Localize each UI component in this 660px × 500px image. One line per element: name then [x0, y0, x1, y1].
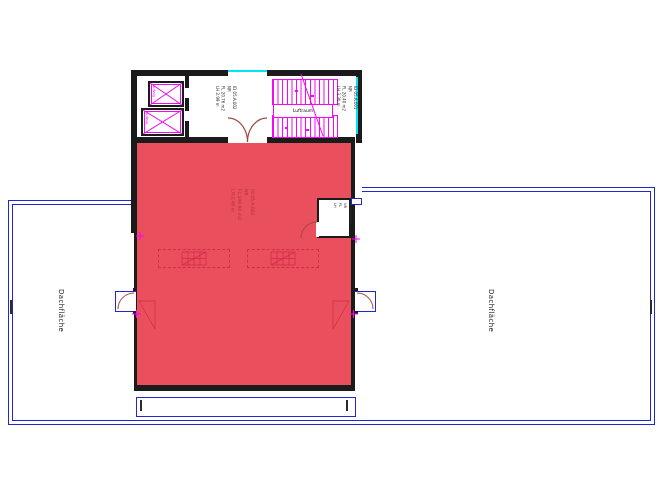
stair-flight-upper — [272, 79, 338, 105]
right-door-jamb-top — [354, 288, 358, 291]
skylight-right — [247, 249, 319, 268]
left-roof-top-outer — [8, 200, 137, 201]
left-exit-door — [115, 291, 136, 312]
left-roof-left-inner — [12, 204, 13, 421]
stamp-corridor-id: ID 05.A.002 — [231, 86, 237, 136]
floor-plan-canvas[interactable]: Dachfläche Dachfläche Aufzug Aufzug Luft… — [0, 0, 660, 500]
stamp-stairwell-fl: FL 20.40 m2 — [341, 86, 347, 136]
stamp-corridor: ID 05.A.002 NR FL 20.76 m2 LH 2.99 m — [214, 86, 237, 136]
right-edge-dimension-mark — [650, 300, 652, 314]
stamp-stairwell: ID 05.A.001 NR FL 20.40 m2 LH 3.30 m — [335, 86, 358, 136]
wall-top-left — [131, 70, 228, 76]
left-roof-left-outer — [8, 200, 9, 425]
elevator-2-car — [144, 111, 181, 133]
left-edge-dimension-mark — [10, 300, 12, 314]
balcony-left-mark — [140, 400, 142, 411]
storage-room-door-opening — [316, 222, 319, 237]
right-roof-right-outer — [654, 187, 655, 425]
window-top-center — [228, 70, 267, 72]
wall-left-upper — [131, 70, 137, 233]
right-roof-label: Dachfläche — [487, 289, 495, 332]
elevator-2-label: Aufzug — [145, 112, 149, 124]
right-roof-top-outer — [356, 187, 655, 188]
skylight-left — [158, 249, 230, 268]
stamp-hall-id: ID 05.A.004 — [248, 189, 255, 247]
stair-void-box: Luftraum — [273, 104, 333, 118]
stamp-stairwell-lh: LH 3.30 m — [335, 86, 341, 136]
lobby-wall-segment-2 — [185, 98, 189, 111]
wall-mid-left — [137, 137, 228, 143]
right-door-jamb-bottom — [354, 311, 358, 314]
stamp-hall-nr: NR — [241, 189, 248, 247]
roof-bottom-outer — [8, 424, 655, 425]
elevator-shaft-2: Aufzug — [141, 108, 184, 136]
roof-bottom-inner — [12, 420, 651, 421]
stamp-hall-fl: FL 199.90 m2 — [235, 189, 242, 247]
wall-right-lower — [351, 143, 355, 391]
wall-top-right — [267, 70, 362, 76]
stair-flight-lower — [272, 115, 338, 138]
stamp-hall-lh: LH 2.40 m — [228, 189, 235, 247]
balcony — [136, 397, 356, 417]
stamp-corridor-fl: FL 20.76 m2 — [220, 86, 226, 136]
lobby-wall-segment-3 — [185, 121, 189, 137]
right-roof-top-inner — [356, 191, 651, 192]
left-door-jamb-bottom — [133, 311, 137, 314]
balcony-right-mark — [346, 400, 348, 411]
stair-void-label: Luftraum — [293, 109, 313, 114]
stamp-stairwell-id: ID 05.A.001 — [352, 86, 358, 136]
lobby-wall-segment-1 — [185, 76, 189, 88]
left-roof-top-inner — [12, 204, 137, 205]
stamp-hall: ID 05.A.004 NR FL 199.90 m2 LH 2.40 m — [228, 189, 254, 247]
window-right-hall — [351, 198, 362, 205]
stamp-storage-id: ID 05.A.003 — [347, 203, 352, 235]
right-exit-door — [355, 291, 376, 312]
stamp-storage-lh: LH — [332, 203, 337, 235]
stamp-storage: ID 05.A.003 NR FL LH — [332, 203, 352, 235]
left-door-jamb-top — [133, 288, 137, 291]
stamp-corridor-lh: LH 2.99 m — [214, 86, 220, 136]
left-roof-label: Dachfläche — [57, 289, 65, 332]
elevator-1-label: Aufzug — [152, 85, 156, 97]
elevator-shaft-1: Aufzug — [148, 81, 184, 107]
wall-bottom — [134, 385, 355, 391]
